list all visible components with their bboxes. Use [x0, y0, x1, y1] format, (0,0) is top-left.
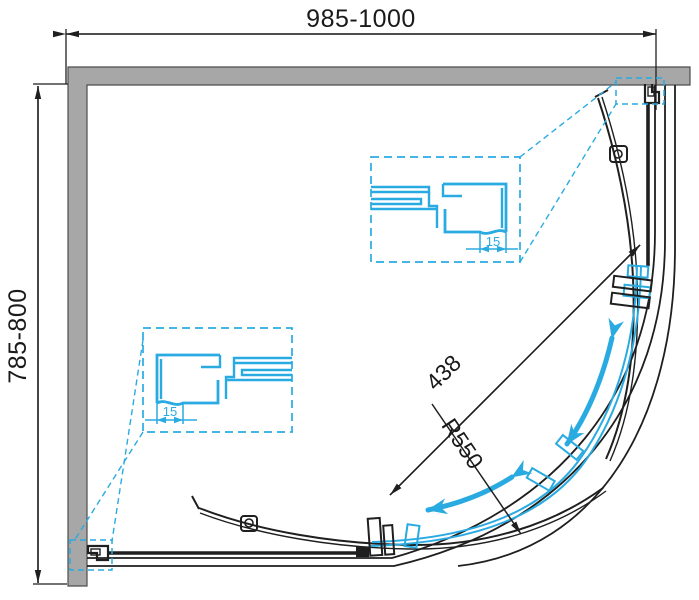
width-dimension: 985-1000: [66, 5, 656, 110]
detail-callout-bottom: 15: [143, 328, 292, 432]
slide-direction-arrow-bottom: [428, 477, 512, 510]
fixed-panel-bottom: [107, 547, 369, 557]
depth-dimension: 785-800: [4, 84, 68, 584]
plan-view-drawing: 985-1000 785-800: [0, 0, 699, 600]
door-stop-right: [611, 276, 652, 308]
depth-dimension-label: 785-800: [4, 288, 32, 383]
radius-dimension-label: R550: [436, 413, 488, 473]
detail-dim-top-label: 15: [486, 234, 500, 249]
callout-leader-lines: [70, 78, 664, 570]
detail-dimension-top: 15: [466, 232, 518, 253]
door-roller-clip: [527, 468, 555, 491]
detail-dim-bottom-label: 15: [163, 404, 177, 419]
panel-end-block: [356, 547, 369, 557]
detail-dimension-bottom: 15: [145, 403, 197, 424]
width-dimension-label: 985-1000: [306, 5, 416, 33]
wall-bracket-top-right: [645, 84, 659, 103]
profile-section-top: [371, 184, 506, 233]
door-stop-bottom: [368, 517, 395, 556]
wall-profile: [68, 67, 690, 586]
detail-callout-top: 15: [371, 157, 520, 262]
radius-dimension: R550: [432, 404, 521, 534]
profile-section-bottom: [157, 355, 292, 404]
technical-drawing-canvas: 985-1000 785-800: [0, 0, 699, 600]
curved-track-rails: [87, 85, 675, 566]
opening-dimension-label: 438: [421, 350, 467, 396]
